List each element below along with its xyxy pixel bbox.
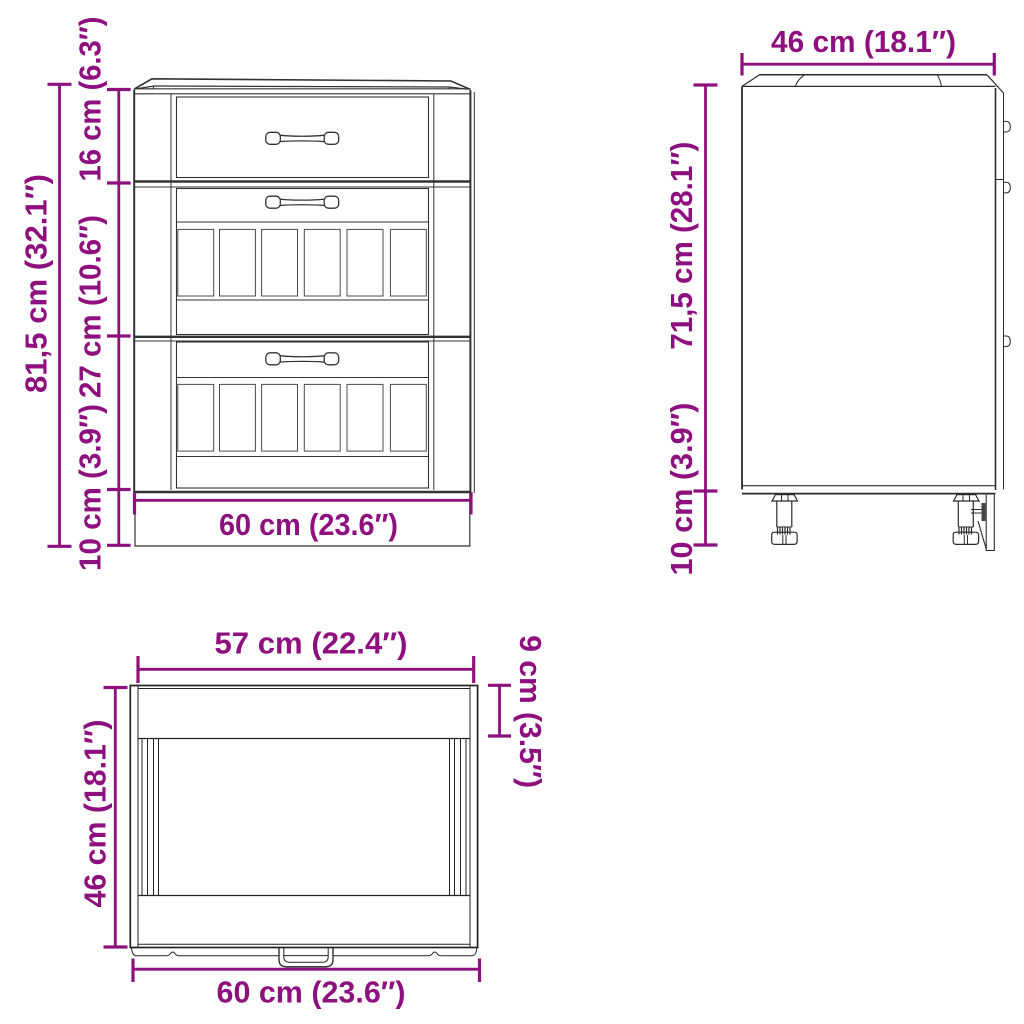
svg-text:27 cm (10.6″): 27 cm (10.6″): [73, 215, 108, 398]
svg-text:57 cm (22.4″): 57 cm (22.4″): [215, 626, 408, 661]
svg-text:81,5 cm (32.1″): 81,5 cm (32.1″): [19, 174, 54, 393]
svg-text:71,5 cm (28.1″): 71,5 cm (28.1″): [664, 142, 699, 350]
svg-text:16 cm (6.3″): 16 cm (6.3″): [73, 17, 108, 182]
svg-text:10 cm (3.9″): 10 cm (3.9″): [664, 403, 699, 576]
svg-text:10 cm (3.9″): 10 cm (3.9″): [73, 404, 108, 571]
svg-text:9 cm (3.5″): 9 cm (3.5″): [513, 635, 548, 788]
svg-text:60 cm (23.6″): 60 cm (23.6″): [219, 507, 398, 542]
svg-text:60 cm (23.6″): 60 cm (23.6″): [217, 975, 406, 1010]
svg-text:46 cm (18.1″): 46 cm (18.1″): [771, 24, 956, 59]
svg-text:46 cm (18.1″): 46 cm (18.1″): [78, 720, 113, 908]
